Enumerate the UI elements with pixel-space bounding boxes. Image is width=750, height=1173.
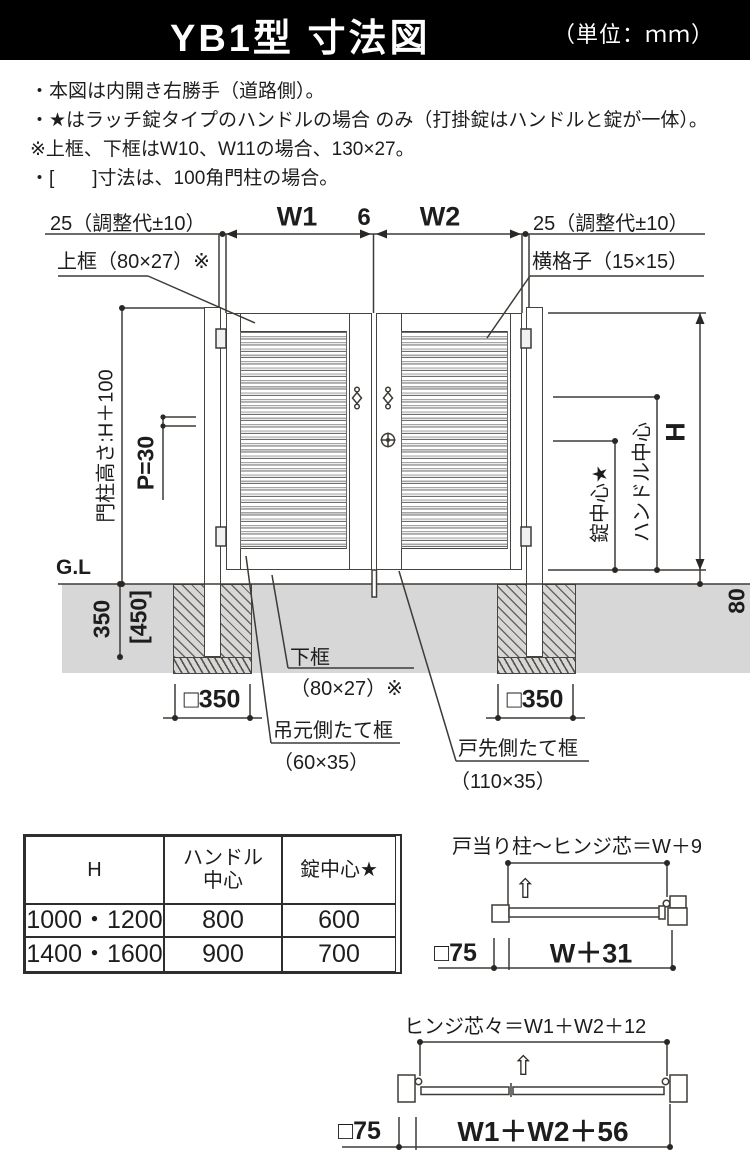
- clearance-label: 80: [724, 588, 750, 614]
- plan2-up-arrow-icon: ⇧: [512, 1053, 535, 1080]
- note-line-1: ・本図は内開き右勝手（道路側）。: [30, 76, 325, 103]
- latch-stile-size-label: （110×35）: [450, 765, 556, 794]
- height-label: H: [661, 422, 692, 442]
- plan1-span-label: W＋31: [550, 932, 633, 971]
- lock-icon: [381, 433, 396, 448]
- table-cell-r1c3: 600: [282, 904, 396, 937]
- top-rail-label: 上框（80×27）※: [57, 245, 210, 274]
- plan1-title: 戸当り柱～ヒンジ芯＝W＋9: [452, 830, 702, 859]
- plan2-span-label: W1＋W2＋56: [457, 1110, 628, 1150]
- table-cell-r2c1: 1400・1600: [25, 937, 164, 972]
- lattice-label: 横格子（15×15）: [532, 245, 688, 274]
- table-cell-r1c1: 1000・1200: [25, 904, 164, 937]
- title-bar: YB1型 寸法図 （単位：ｍｍ）: [0, 0, 750, 60]
- unit-label: （単位：ｍｍ）: [553, 17, 714, 49]
- bottom-rail-label: 下框: [290, 641, 330, 670]
- spec-table: H ハンドル 中心 錠中心★ 1000・1200 800 600 1400・16…: [23, 834, 402, 974]
- plan2-title: ヒンジ芯々＝W1＋W2＋12: [404, 1010, 646, 1039]
- gap6-label: 6: [357, 204, 370, 232]
- hinge-stile-size-label: （60×35）: [273, 746, 369, 775]
- table-header-handle-line1: ハンドル: [183, 847, 263, 870]
- note-line-2: ・★はラッチ錠タイプのハンドルの場合 のみ（打掛錠はハンドルと錠が一体）。: [30, 105, 708, 132]
- page-title: YB1型 寸法図: [170, 7, 430, 62]
- lock-center-label: 錠中心★: [584, 465, 613, 543]
- table-header-h-text: H: [87, 859, 101, 882]
- table-cell-r1c2: 800: [164, 904, 282, 937]
- footing-left-label: □350: [184, 686, 241, 715]
- table-header-h: H: [25, 836, 164, 904]
- plan1-up-arrow-icon: ⇧: [514, 876, 537, 903]
- w2-label: W2: [420, 202, 461, 233]
- dimension-drawing-page: YB1型 寸法図 （単位：ｍｍ） ・本図は内開き右勝手（道路側）。 ・★はラッチ…: [0, 0, 750, 1173]
- adjust-right-label: 25（調整代±10）: [533, 207, 688, 236]
- pitch-label: P=30: [133, 436, 160, 490]
- table-cell-r2c3: 700: [282, 937, 396, 972]
- table-cell-r2c2: 900: [164, 937, 282, 972]
- table-header-lock-text: 錠中心★: [300, 859, 378, 882]
- post-height-label: 門柱高さ:H＋100: [90, 369, 119, 522]
- table-header-handle-line2: 中心: [203, 870, 243, 893]
- latch-stile-label: 戸先側たて框: [458, 732, 578, 761]
- embed-depth-bracket-label: [450]: [126, 590, 153, 644]
- hinge-stile-label: 吊元側たて框: [273, 714, 393, 743]
- note-line-4: ・[ ]寸法は、100角門柱の場合。: [30, 163, 338, 190]
- table-header-lock: 錠中心★: [282, 836, 396, 904]
- embed-depth-label: 350: [89, 600, 116, 638]
- footing-right-label: □350: [507, 686, 564, 715]
- w1-label: W1: [277, 202, 318, 233]
- plan1-post-label: □75: [434, 939, 477, 968]
- bottom-rail-size-label: （80×27）※: [290, 672, 403, 701]
- adjust-left-label: 25（調整代±10）: [50, 207, 205, 236]
- left-handle-icon: [353, 387, 362, 409]
- table-header-handle: ハンドル 中心: [164, 836, 282, 904]
- note-line-3: ※上框、下框はW10、W11の場合、130×27。: [30, 134, 415, 161]
- right-handle-icon: [384, 387, 393, 409]
- ground-level-label: G.L: [56, 556, 91, 580]
- plan2-post-label: □75: [338, 1117, 381, 1146]
- handle-center-label: ハンドル中心: [626, 422, 655, 542]
